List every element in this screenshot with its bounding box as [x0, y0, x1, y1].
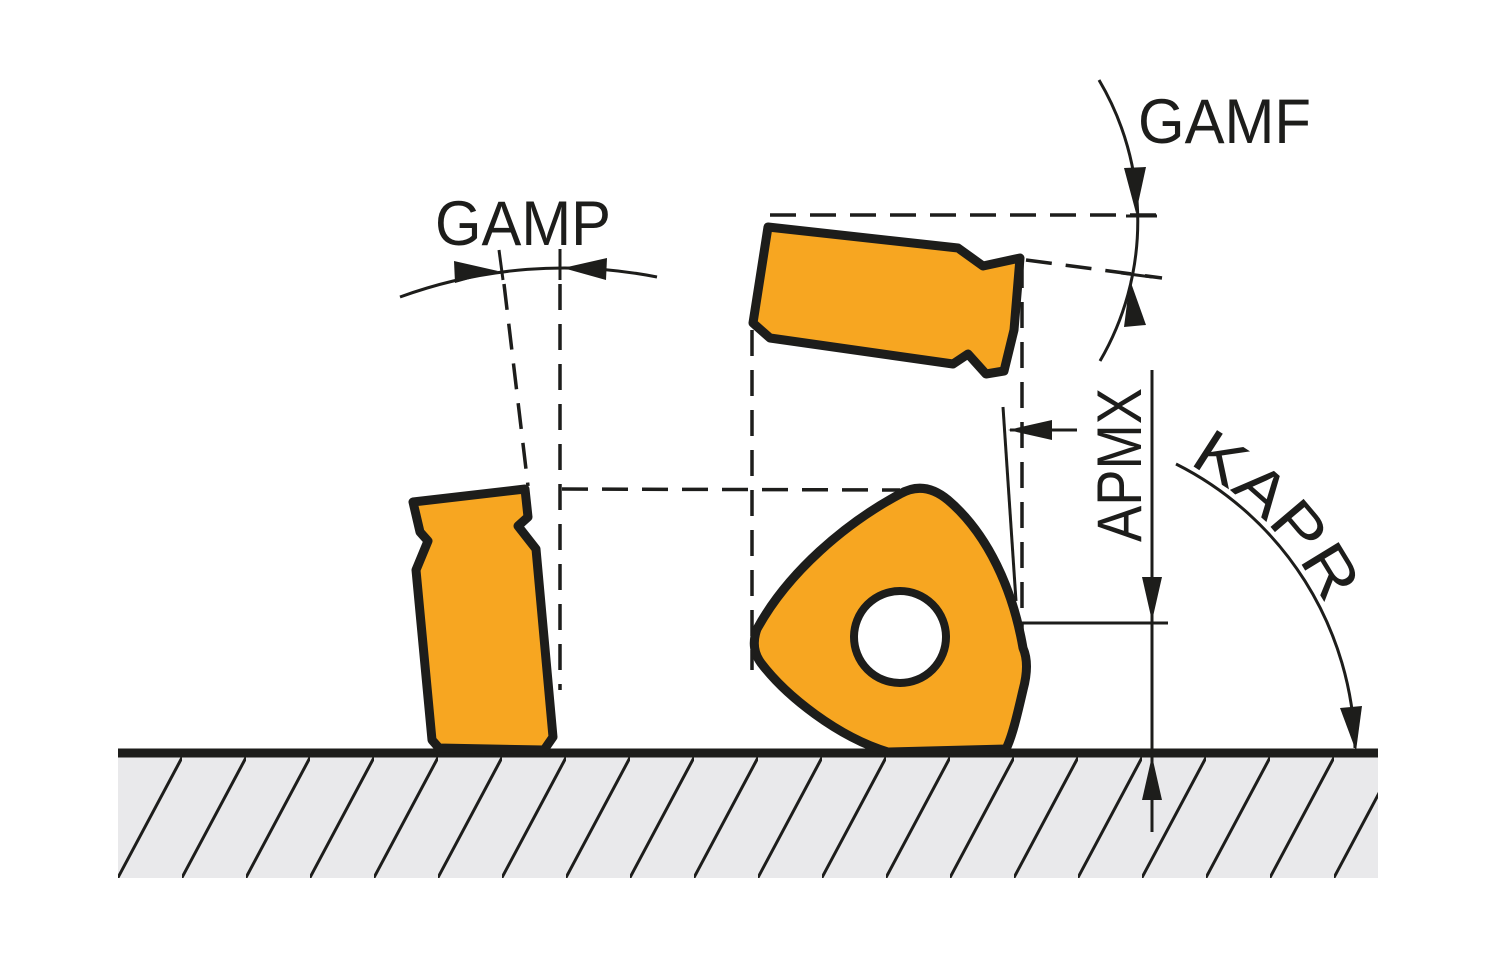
- workpiece: [118, 753, 1378, 878]
- gamp-rake-dashed: [504, 284, 528, 486]
- gamp-arrowhead-right: [563, 258, 607, 280]
- gamp-angle-arc: [400, 268, 657, 297]
- insert-screw-hole: [854, 591, 946, 683]
- apmx-label: APMX: [1085, 388, 1155, 542]
- gamp-label: GAMP: [435, 189, 611, 259]
- insert-side-view-axial: [413, 489, 553, 750]
- gamf-tick-bottom: [1121, 273, 1152, 277]
- gamf-arrowhead-bottom: [1124, 280, 1146, 327]
- insert-angle-diagram: GAMP GAMF APMX KAPR: [0, 0, 1500, 957]
- tip-height-dashed: [562, 489, 900, 490]
- gamf-label: GAMF: [1138, 87, 1311, 157]
- kapr-arrowhead: [1340, 706, 1362, 751]
- gamp-arrowhead-left: [454, 261, 498, 283]
- workpiece-hatch: [118, 757, 1378, 878]
- cutting-edge-pointer-arrowhead: [1008, 420, 1052, 440]
- insert-angle-diagram-page: GAMP GAMF APMX KAPR: [0, 0, 1500, 957]
- kapr-label: KAPR: [1181, 416, 1374, 612]
- gamf-arrowhead-top: [1124, 167, 1146, 213]
- apmx-arrowhead-down: [1142, 577, 1162, 621]
- insert-side-view-radial: [753, 227, 1020, 374]
